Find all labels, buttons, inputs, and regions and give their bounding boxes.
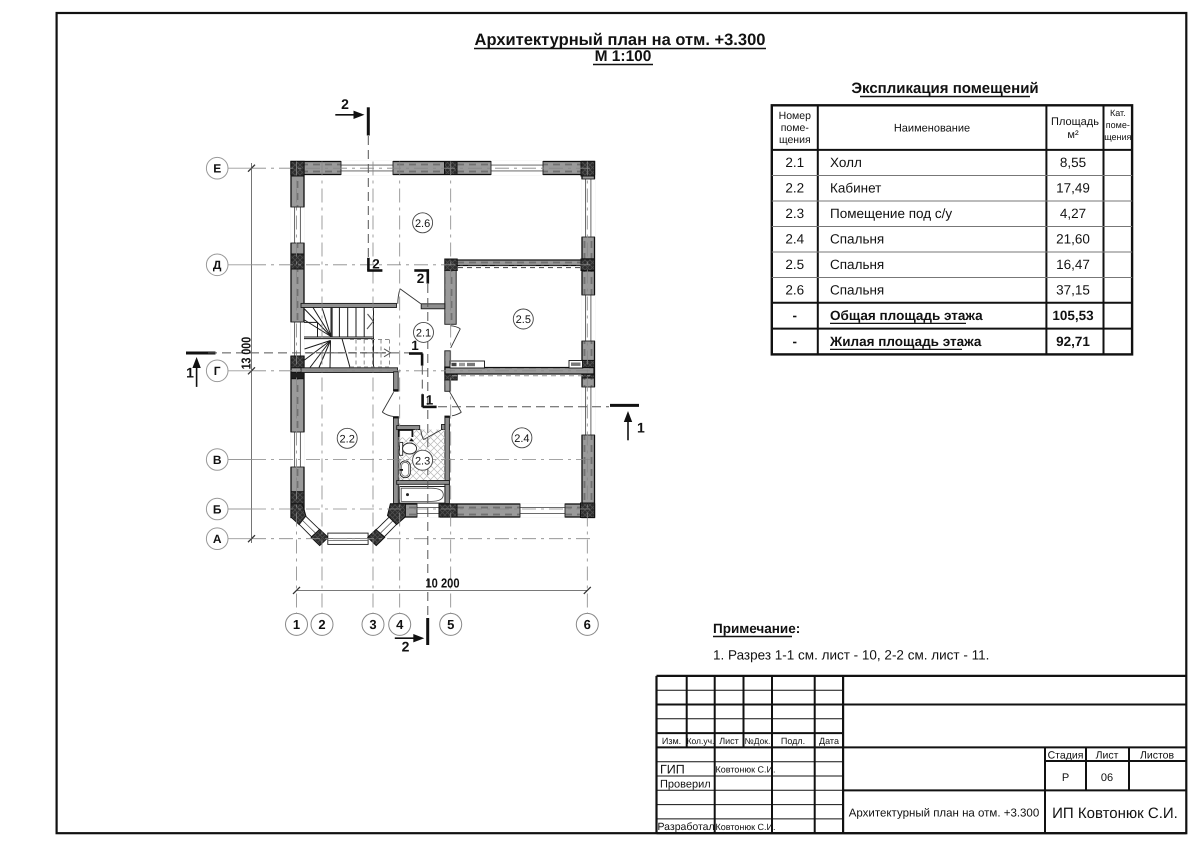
svg-text:Архитектурный план на отм. +3.: Архитектурный план на отм. +3.300 bbox=[849, 808, 1039, 820]
svg-text:Жилая площадь этажа: Жилая площадь этажа bbox=[829, 334, 982, 349]
svg-text:2.5: 2.5 bbox=[785, 257, 804, 272]
svg-text:-: - bbox=[793, 334, 798, 349]
svg-text:4,27: 4,27 bbox=[1060, 206, 1086, 221]
svg-text:А: А bbox=[213, 532, 222, 546]
svg-text:21,60: 21,60 bbox=[1056, 232, 1090, 247]
svg-text:Площадь: Площадь bbox=[1051, 116, 1099, 128]
svg-text:4: 4 bbox=[396, 617, 404, 632]
svg-text:Р: Р bbox=[1062, 772, 1069, 784]
svg-text:2: 2 bbox=[402, 639, 410, 655]
svg-text:2.4: 2.4 bbox=[785, 232, 804, 247]
svg-text:поме-: поме- bbox=[1106, 120, 1130, 130]
svg-text:6: 6 bbox=[584, 617, 591, 632]
svg-text:-: - bbox=[793, 308, 798, 323]
svg-text:2: 2 bbox=[372, 256, 380, 271]
svg-text:1: 1 bbox=[637, 420, 645, 436]
svg-text:М 1:100: М 1:100 bbox=[595, 48, 652, 65]
svg-text:№Док.: №Док. bbox=[745, 736, 771, 746]
svg-text:13 000: 13 000 bbox=[239, 337, 254, 370]
svg-text:Примечание:: Примечание: bbox=[713, 621, 800, 636]
svg-text:Помещение под с/у: Помещение под с/у bbox=[830, 206, 952, 221]
svg-text:1: 1 bbox=[426, 393, 434, 408]
svg-text:5: 5 bbox=[447, 617, 454, 632]
svg-text:Стадия: Стадия bbox=[1048, 750, 1084, 762]
svg-text:37,15: 37,15 bbox=[1056, 283, 1090, 298]
svg-text:Дата: Дата bbox=[819, 736, 839, 746]
svg-text:Листов: Листов bbox=[1140, 750, 1175, 762]
svg-text:Ковтонюк С.И.: Ковтонюк С.И. bbox=[716, 822, 776, 832]
svg-text:16,47: 16,47 bbox=[1056, 257, 1090, 272]
svg-text:06: 06 bbox=[1101, 772, 1113, 784]
svg-text:2.4: 2.4 bbox=[514, 433, 529, 445]
svg-text:Номер: Номер bbox=[779, 110, 811, 122]
svg-text:Е: Е bbox=[213, 162, 221, 176]
svg-text:Лист: Лист bbox=[1096, 750, 1119, 762]
svg-text:2.1: 2.1 bbox=[785, 155, 804, 170]
svg-text:Разработал: Разработал bbox=[658, 821, 715, 833]
svg-text:105,53: 105,53 bbox=[1052, 308, 1094, 323]
svg-text:ИП Ковтонюк С.И.: ИП Ковтонюк С.И. bbox=[1052, 805, 1178, 822]
svg-text:Кабинет: Кабинет bbox=[830, 181, 881, 196]
svg-text:Изм.: Изм. bbox=[662, 736, 681, 746]
svg-text:10 200: 10 200 bbox=[426, 576, 460, 591]
svg-text:2.2: 2.2 bbox=[785, 181, 804, 196]
svg-text:Б: Б bbox=[213, 502, 222, 516]
svg-text:Г: Г bbox=[214, 364, 221, 378]
svg-text:Холл: Холл bbox=[830, 155, 862, 170]
svg-text:щения: щения bbox=[1104, 132, 1131, 142]
svg-text:Кол.уч.: Кол.уч. bbox=[687, 736, 715, 746]
svg-text:2.2: 2.2 bbox=[340, 434, 355, 446]
svg-text:Экспликация помещений: Экспликация помещений bbox=[851, 80, 1038, 97]
svg-text:Наименование: Наименование bbox=[894, 123, 970, 135]
svg-text:2: 2 bbox=[417, 271, 425, 286]
svg-text:В: В bbox=[213, 453, 222, 467]
svg-text:Лист: Лист bbox=[719, 736, 739, 746]
svg-text:поме-: поме- bbox=[781, 122, 810, 134]
svg-text:2.6: 2.6 bbox=[415, 218, 430, 230]
svg-text:Спальня: Спальня bbox=[830, 283, 884, 298]
svg-text:Общая площадь этажа: Общая площадь этажа bbox=[830, 308, 983, 323]
svg-text:1. Разрез 1-1 см. лист - 10, 2: 1. Разрез 1-1 см. лист - 10, 2-2 см. лис… bbox=[713, 648, 989, 663]
svg-text:ГИП: ГИП bbox=[660, 763, 685, 777]
svg-text:2.5: 2.5 bbox=[516, 314, 531, 326]
svg-text:17,49: 17,49 bbox=[1056, 181, 1090, 196]
svg-text:2: 2 bbox=[318, 617, 325, 632]
svg-text:2: 2 bbox=[341, 96, 349, 112]
svg-text:Ковтонюк С.И.: Ковтонюк С.И. bbox=[716, 765, 776, 775]
svg-text:Спальня: Спальня bbox=[830, 257, 884, 272]
svg-text:3: 3 bbox=[369, 617, 376, 632]
svg-text:2.3: 2.3 bbox=[785, 206, 804, 221]
svg-text:Подл.: Подл. bbox=[781, 736, 805, 746]
svg-text:Спальня: Спальня bbox=[830, 232, 884, 247]
svg-text:8,55: 8,55 bbox=[1060, 155, 1086, 170]
svg-text:2.6: 2.6 bbox=[785, 283, 804, 298]
svg-text:1: 1 bbox=[186, 365, 194, 381]
svg-text:Архитектурный план на отм. +3.: Архитектурный план на отм. +3.300 bbox=[475, 31, 766, 49]
svg-text:м²: м² bbox=[1067, 129, 1079, 141]
svg-text:2.1: 2.1 bbox=[416, 328, 431, 340]
svg-text:Д: Д bbox=[213, 258, 222, 272]
svg-text:Проверил: Проверил bbox=[660, 779, 711, 791]
svg-text:2.3: 2.3 bbox=[415, 455, 430, 467]
svg-text:Кат.: Кат. bbox=[1110, 108, 1126, 118]
svg-text:щения: щения bbox=[779, 134, 811, 146]
svg-text:1: 1 bbox=[293, 617, 300, 632]
svg-text:92,71: 92,71 bbox=[1056, 334, 1090, 349]
